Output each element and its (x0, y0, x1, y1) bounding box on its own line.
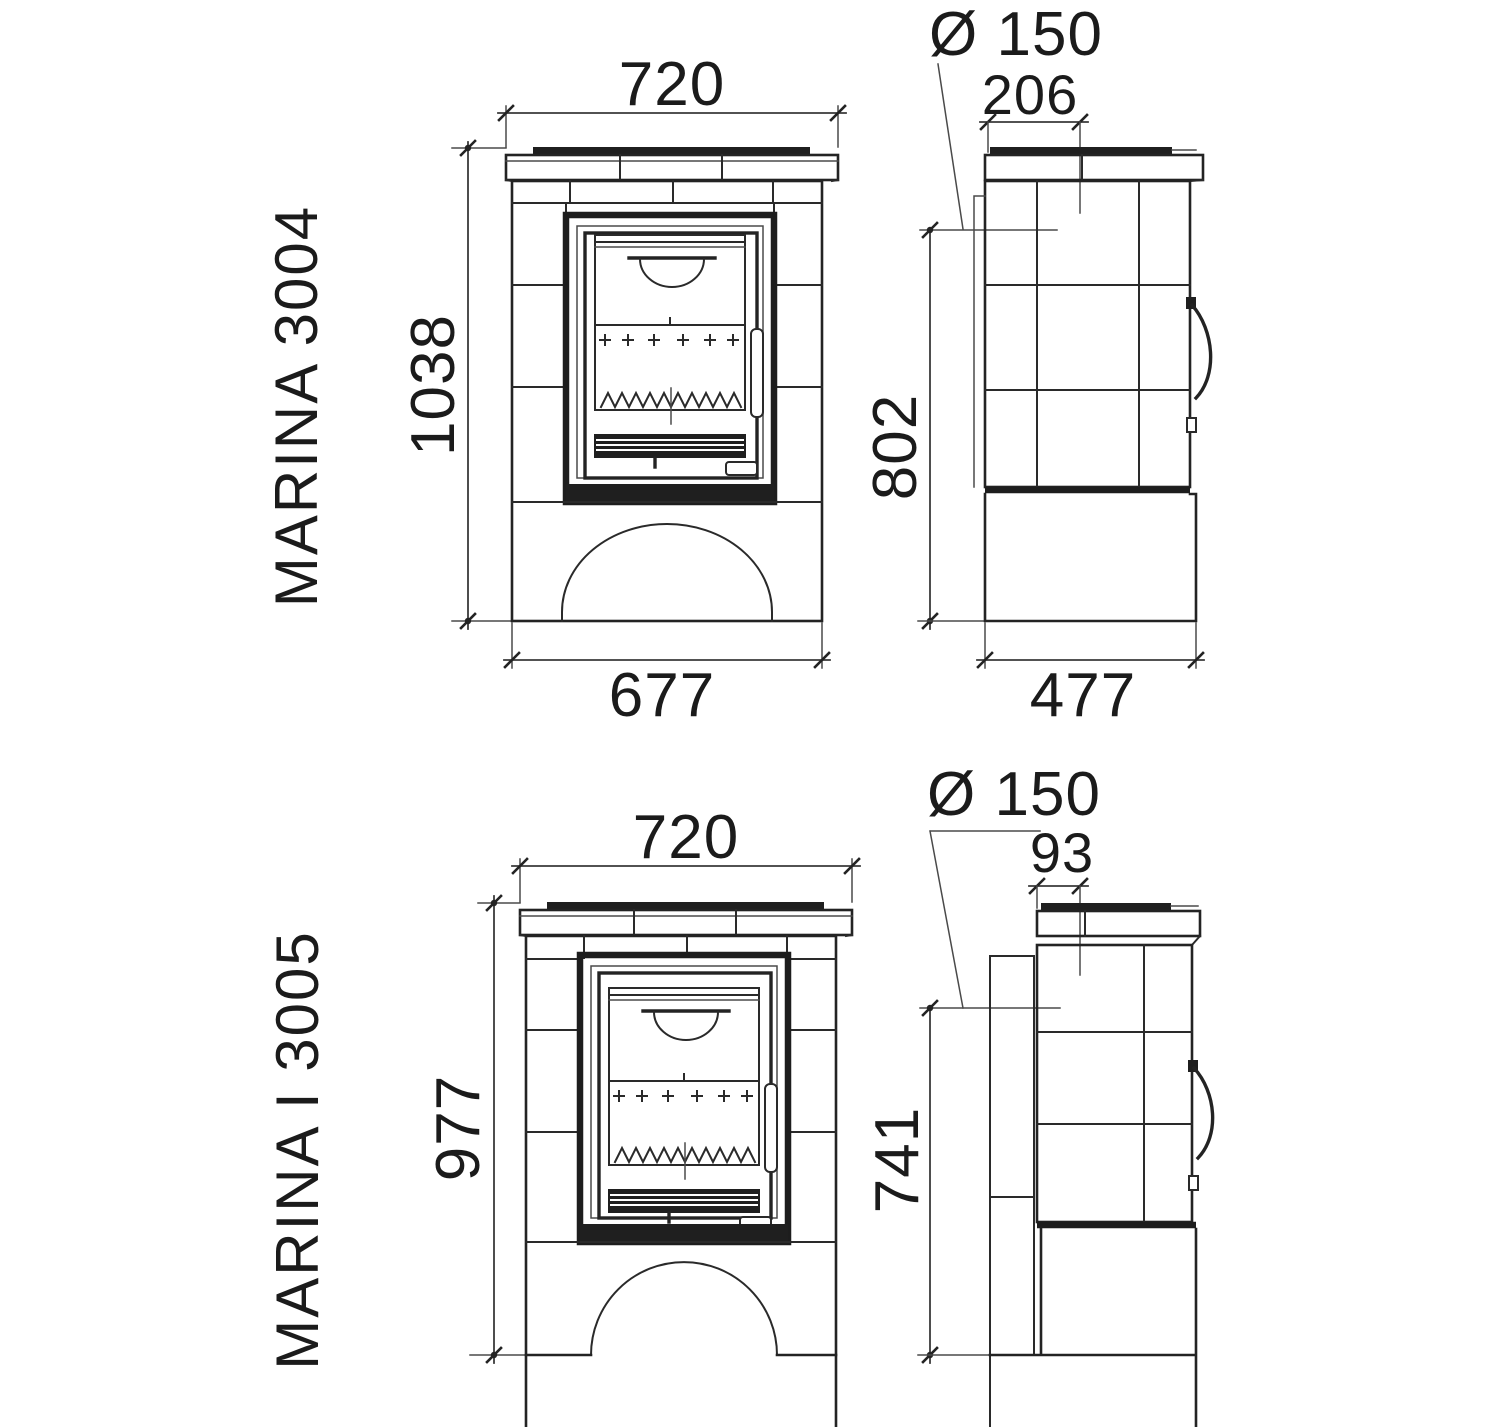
door-latch (726, 462, 757, 475)
stove-3005-base (526, 1242, 836, 1355)
stove-3005-door (580, 955, 788, 1242)
dim-3004-outlet-height-label: 802 (861, 394, 930, 500)
model-3005-side-view: Ø 150 93 741 (863, 760, 1213, 1427)
air-vent-dots (614, 1091, 752, 1101)
back-heat-shield (974, 196, 985, 487)
model-3004-label: MARINA 3004 (263, 205, 330, 607)
dim-3004-top-width-label: 720 (619, 50, 725, 119)
dim-3004-flue-offset (980, 115, 1088, 213)
stove-3005-side-base (990, 1229, 1196, 1427)
stove-3005-cap (520, 902, 852, 936)
door-handle-arc (640, 259, 704, 287)
stove-3005-rear-flue-duct (990, 956, 1034, 1427)
flue-leader-line (938, 64, 963, 229)
dim-3004-base-width-label: 677 (609, 661, 715, 730)
dim-3004-base-width: 677 (504, 623, 830, 730)
door-sill (580, 1224, 788, 1242)
model-3005: MARINA I 3005 720 977 (264, 760, 1213, 1427)
model-3005-front-view: 720 977 (424, 803, 860, 1427)
dim-3005-height: 977 (424, 896, 526, 1363)
stove-3004-side-body (974, 181, 1211, 490)
dim-3005-top-width-label: 720 (633, 803, 739, 872)
dim-3004-flue-offset-label: 206 (982, 63, 1078, 126)
drawing-canvas: MARINA 3004 720 1038 (0, 0, 1500, 1427)
model-3004-front-view: 720 1038 (399, 50, 846, 730)
door-sill (566, 484, 774, 502)
dim-3004-depth: 477 (977, 623, 1204, 730)
dim-3005-height-label: 977 (424, 1075, 493, 1181)
side-tile-joints (985, 181, 1190, 487)
model-3004: MARINA 3004 720 1038 (263, 0, 1211, 730)
dim-3004-height: 1038 (399, 141, 512, 629)
door-hinge-strip (765, 1084, 777, 1172)
door-handle-arc (654, 1012, 718, 1040)
side-tile-joints (1037, 945, 1192, 1222)
dim-3004-outlet-height: 802 (861, 223, 985, 629)
dim-3005-flue-diameter-label: Ø 150 (927, 760, 1101, 829)
flue-leader-line (930, 831, 1040, 1008)
dim-3005-top-width: 720 (512, 803, 860, 902)
dimension-drawing: MARINA 3004 720 1038 (0, 0, 1500, 1427)
dim-3004-top-width: 720 (498, 50, 846, 147)
stove-3004-side-base (985, 494, 1196, 621)
vent-grille (594, 434, 746, 467)
stove-3004-base (512, 502, 822, 621)
base-arch (591, 1262, 777, 1355)
stove-3005-side-body (1037, 945, 1213, 1225)
base-arch (562, 524, 772, 621)
air-vent-dots (600, 335, 738, 345)
dim-3004-depth-label: 477 (1030, 661, 1136, 730)
stove-3004-side-cap (985, 147, 1203, 181)
model-3004-side-view: Ø 150 206 802 (861, 0, 1211, 730)
dim-3005-outlet-height: 741 (863, 1001, 1040, 1363)
model-3005-label: MARINA I 3005 (264, 930, 331, 1370)
dim-3005-outlet-height-label: 741 (863, 1107, 932, 1213)
stove-3004-door (566, 215, 774, 502)
stove-3004-cap (506, 147, 838, 181)
dim-3004-height-label: 1038 (399, 314, 468, 456)
dim-3004-flue-diameter-label: Ø 150 (929, 0, 1103, 69)
stove-3005-side-cap (1037, 903, 1200, 945)
door-hinge-strip (751, 329, 763, 417)
